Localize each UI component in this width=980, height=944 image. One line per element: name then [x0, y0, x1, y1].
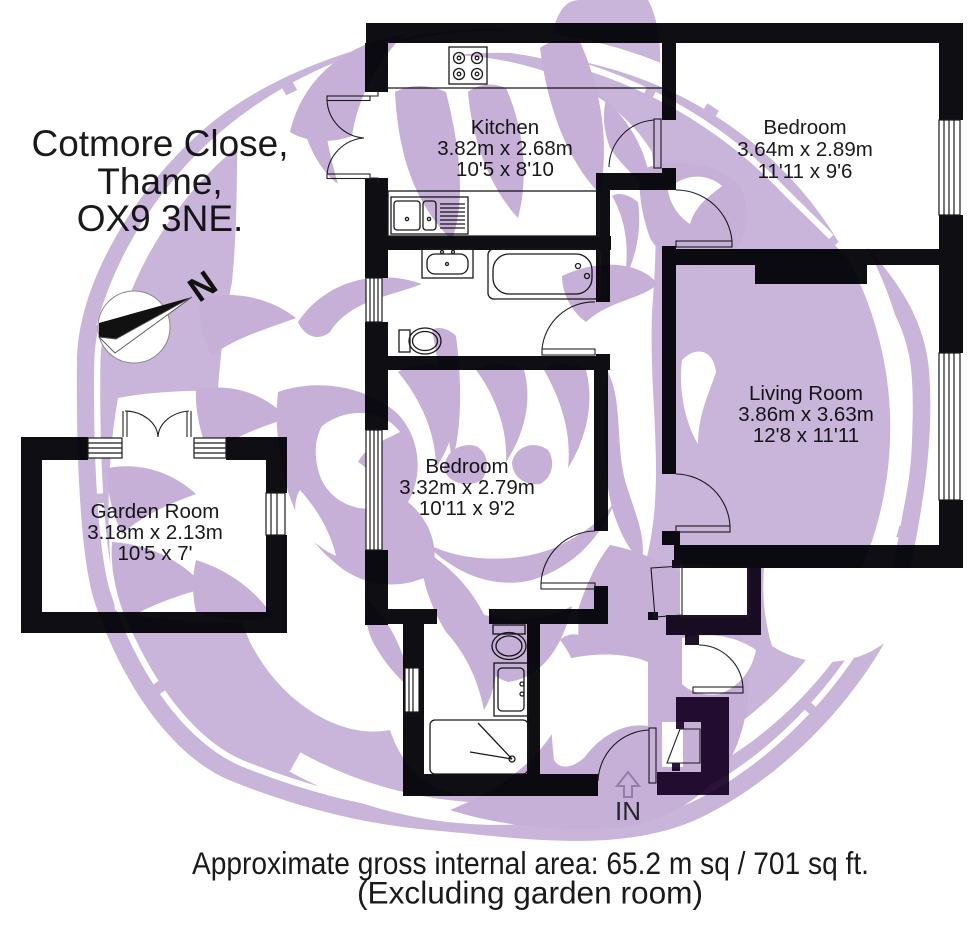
svg-text:N: N: [181, 263, 224, 309]
